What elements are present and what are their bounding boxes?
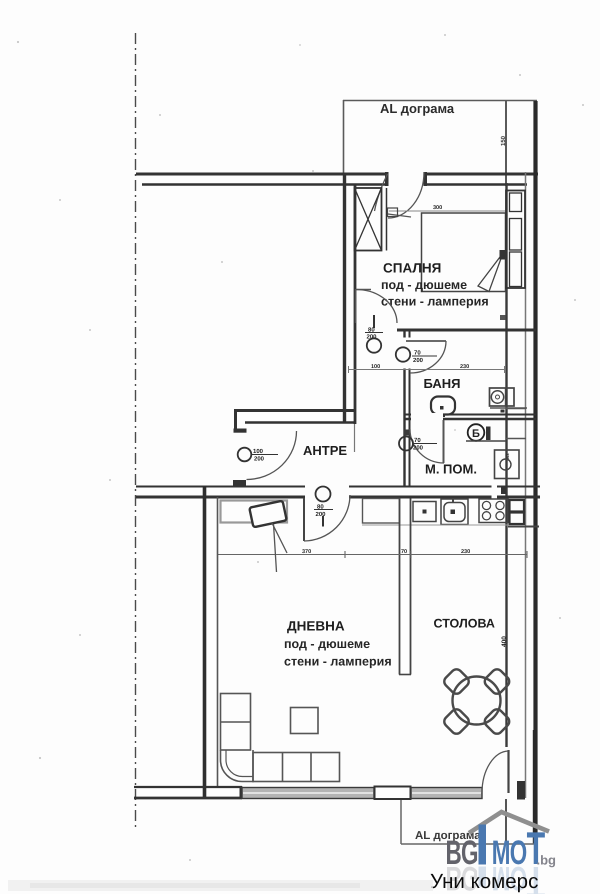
svg-text:70: 70 — [414, 350, 421, 357]
svg-text:70: 70 — [414, 437, 421, 444]
svg-text:СТОЛОВА: СТОЛОВА — [434, 617, 495, 631]
svg-text:200: 200 — [413, 445, 424, 452]
svg-text:СПАЛНЯ: СПАЛНЯ — [383, 261, 441, 276]
svg-text:200: 200 — [254, 456, 265, 463]
svg-text:230: 230 — [461, 549, 470, 555]
svg-text:70: 70 — [401, 549, 407, 555]
svg-text:БАНЯ: БАНЯ — [424, 376, 461, 391]
svg-text:AL дограма: AL дограма — [380, 101, 455, 116]
svg-text:стени - ламперия: стени - ламперия — [284, 655, 392, 669]
svg-text:200: 200 — [316, 511, 327, 518]
svg-text:150: 150 — [500, 135, 507, 146]
svg-text:80: 80 — [368, 327, 375, 334]
svg-text:300: 300 — [433, 205, 442, 211]
svg-text:под - дюшеме: под - дюшеме — [284, 637, 370, 651]
svg-text:80: 80 — [317, 504, 324, 511]
svg-text:стени - ламперия: стени - ламперия — [381, 295, 489, 309]
svg-text:Уни комерс: Уни комерс — [430, 870, 538, 893]
svg-text:230: 230 — [460, 364, 469, 370]
svg-text:Б: Б — [472, 428, 480, 440]
svg-text:370: 370 — [302, 549, 311, 555]
svg-text:200: 200 — [413, 357, 424, 364]
svg-text:100: 100 — [371, 364, 380, 370]
svg-text:М. ПОМ.: М. ПОМ. — [425, 462, 477, 477]
svg-text:100: 100 — [253, 448, 264, 455]
svg-text:АНТРЕ: АНТРЕ — [303, 443, 347, 458]
svg-text:под - дюшеме: под - дюшеме — [381, 278, 467, 292]
svg-text:вз: вз — [505, 453, 511, 459]
svg-text:ДНЕВНА: ДНЕВНА — [287, 619, 345, 634]
svg-text:400: 400 — [501, 636, 508, 647]
svg-text:200: 200 — [367, 334, 378, 341]
